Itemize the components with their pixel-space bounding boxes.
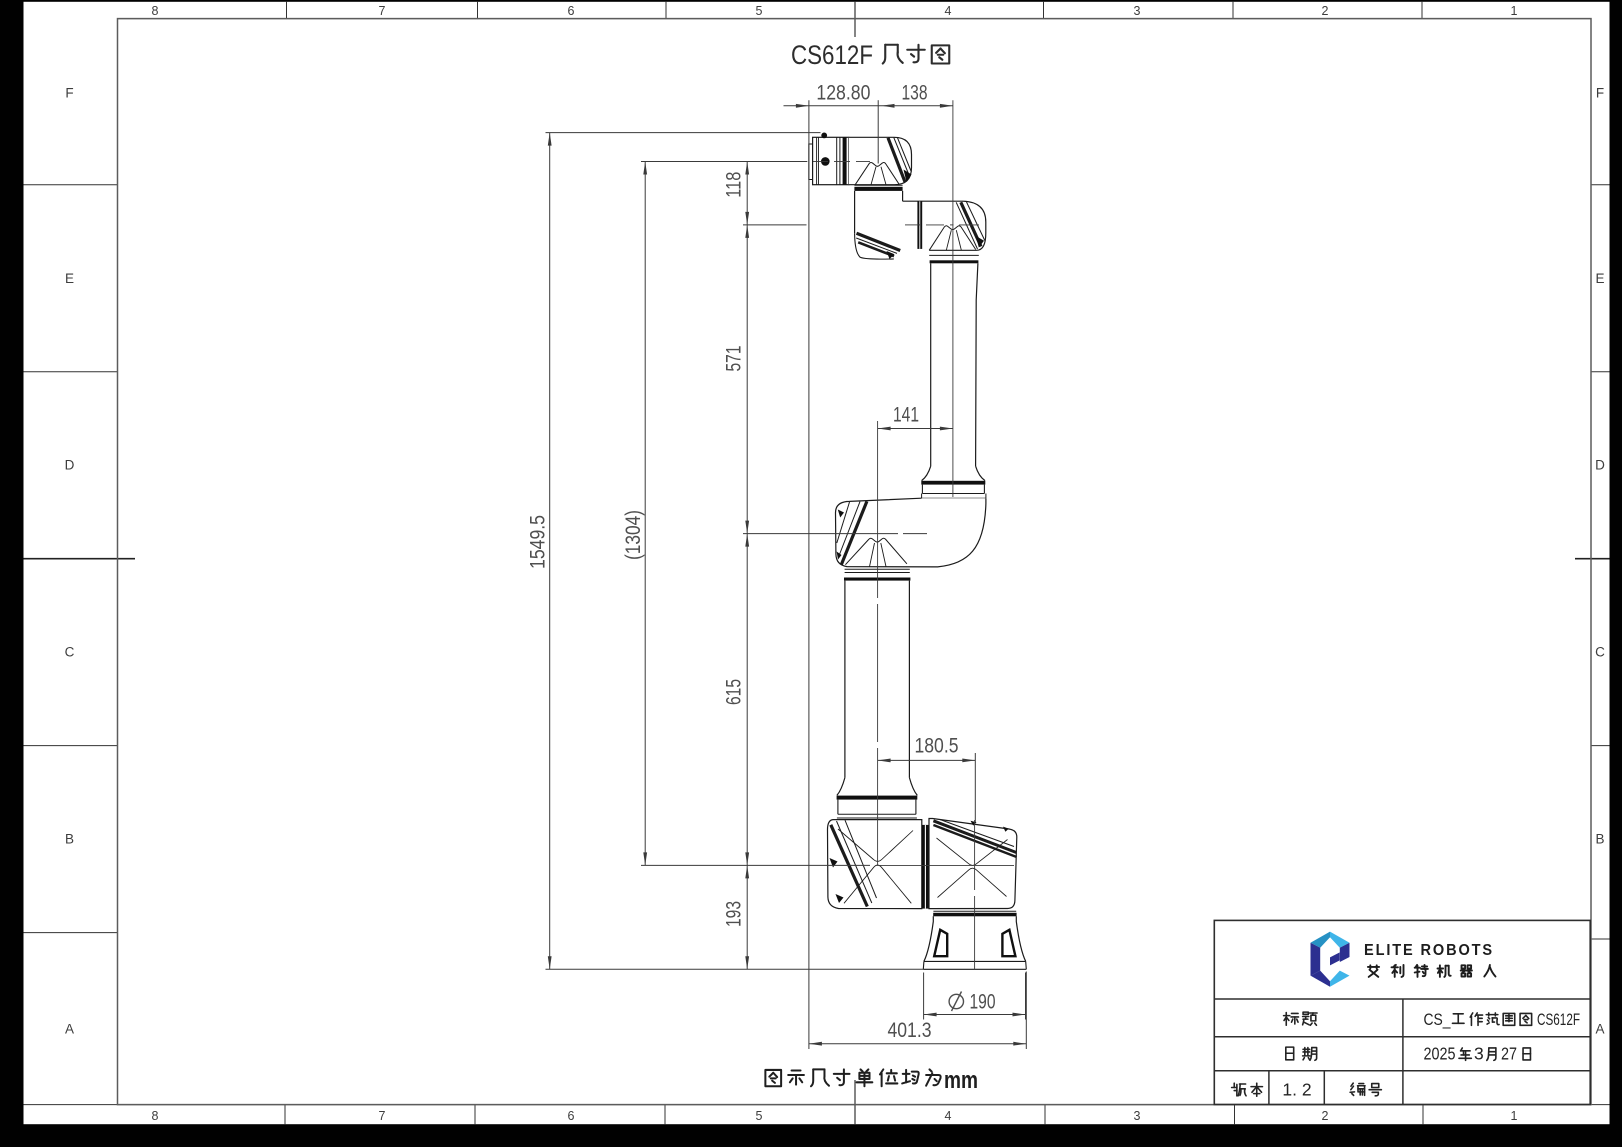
svg-text:5: 5 [756, 4, 763, 18]
svg-text:138: 138 [902, 82, 928, 105]
svg-text:3: 3 [1134, 1109, 1141, 1123]
svg-text:E: E [1595, 271, 1604, 286]
svg-text:ELITE ROBOTS: ELITE ROBOTS [1364, 942, 1494, 959]
svg-text:2025: 2025 [1424, 1044, 1456, 1064]
svg-text:C: C [65, 645, 75, 660]
svg-text:401.3: 401.3 [888, 1019, 932, 1042]
svg-text:D: D [65, 458, 75, 473]
svg-text:7: 7 [379, 4, 386, 18]
svg-text:CS_: CS_ [1424, 1010, 1451, 1029]
svg-text:F: F [65, 86, 73, 101]
svg-text:F: F [1596, 86, 1604, 101]
svg-text:D: D [1595, 458, 1605, 473]
svg-text:8: 8 [152, 1109, 159, 1123]
svg-text:571: 571 [723, 346, 746, 372]
svg-text:B: B [1595, 832, 1604, 847]
svg-text:B: B [65, 832, 74, 847]
svg-text:6: 6 [568, 1109, 575, 1123]
svg-text:2: 2 [1322, 1109, 1329, 1123]
svg-text:7: 7 [379, 1109, 386, 1123]
svg-text:615: 615 [723, 679, 746, 705]
svg-text:A: A [65, 1022, 74, 1037]
svg-text:CS612F: CS612F [1537, 1010, 1580, 1029]
svg-text:1. 2: 1. 2 [1282, 1080, 1311, 1100]
svg-text:4: 4 [945, 1109, 952, 1123]
svg-text:118: 118 [723, 172, 746, 198]
svg-text:180.5: 180.5 [915, 735, 959, 758]
svg-text:190: 190 [970, 991, 996, 1014]
svg-text:1: 1 [1511, 4, 1518, 18]
svg-text:C: C [1595, 645, 1605, 660]
svg-text:128.80: 128.80 [816, 82, 870, 105]
svg-text:1549.5: 1549.5 [527, 515, 550, 569]
svg-text:(1304): (1304) [622, 510, 645, 560]
svg-text:mm: mm [944, 1067, 978, 1094]
svg-text:193: 193 [723, 901, 746, 927]
svg-text:CS612F: CS612F [791, 40, 873, 70]
svg-text:27: 27 [1501, 1044, 1517, 1064]
svg-text:5: 5 [756, 1109, 763, 1123]
svg-text:2: 2 [1322, 4, 1329, 18]
svg-text:3: 3 [1134, 4, 1141, 18]
svg-text:1: 1 [1511, 1109, 1518, 1123]
svg-text:6: 6 [568, 4, 575, 18]
svg-text:8: 8 [152, 4, 159, 18]
svg-text:3: 3 [1474, 1044, 1484, 1064]
svg-text:E: E [65, 271, 74, 286]
svg-text:A: A [1595, 1022, 1604, 1037]
svg-text:141: 141 [893, 404, 919, 427]
svg-text:4: 4 [945, 4, 952, 18]
